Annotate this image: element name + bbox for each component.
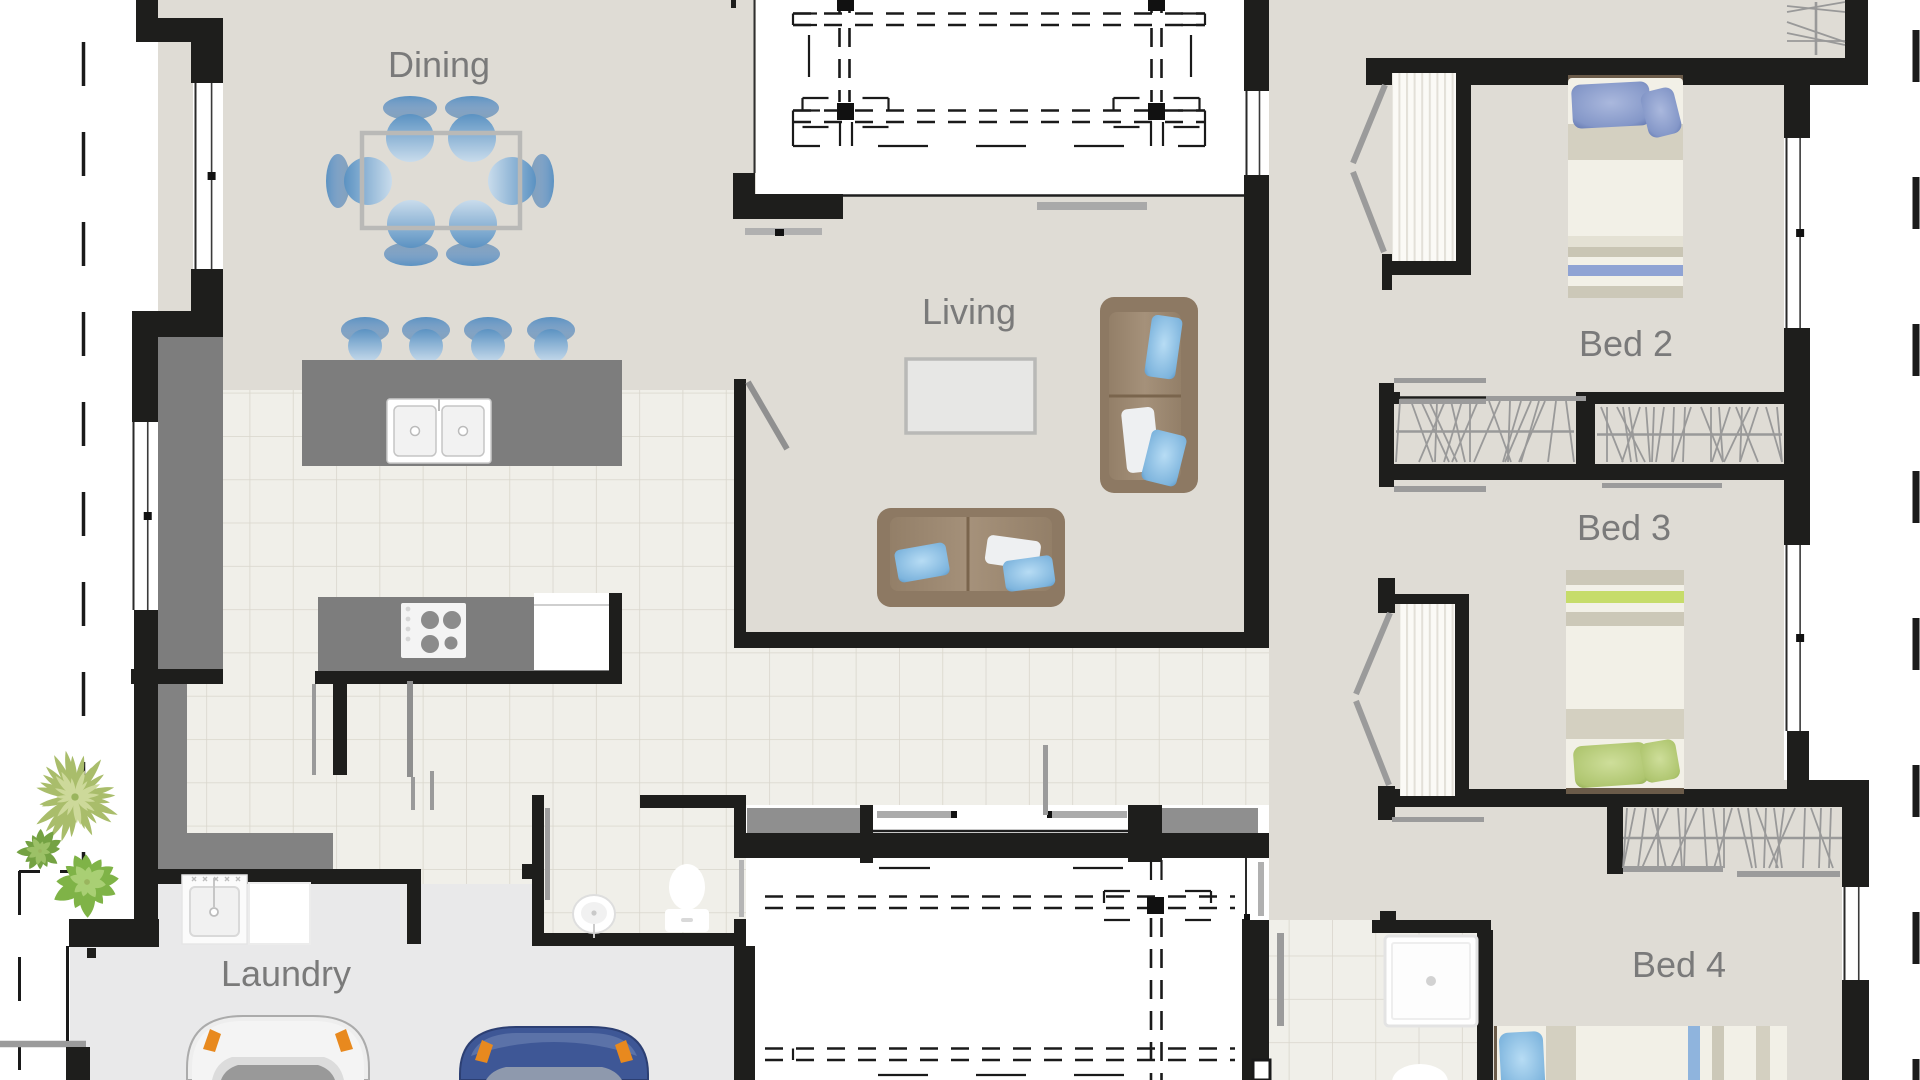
svg-text:Bed 2: Bed 2 <box>1579 323 1673 364</box>
svg-text:Laundry: Laundry <box>221 953 351 994</box>
svg-text:Bed 4: Bed 4 <box>1632 944 1726 985</box>
svg-text:Living: Living <box>922 291 1016 332</box>
svg-text:Dining: Dining <box>388 44 490 85</box>
svg-text:Bed 3: Bed 3 <box>1577 507 1671 548</box>
